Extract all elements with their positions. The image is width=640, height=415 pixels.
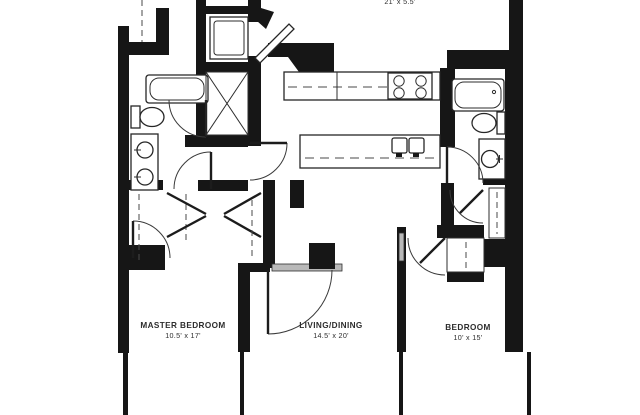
wall-segment	[196, 0, 206, 147]
wall-segment	[118, 245, 165, 270]
walls	[118, 0, 531, 415]
island-sink-icon	[392, 138, 407, 153]
master-bedroom-label: MASTER BEDROOM	[140, 321, 225, 330]
faucet-icon	[396, 153, 402, 157]
toilet-icon	[140, 108, 164, 127]
toilet-icon	[472, 114, 496, 133]
second-bathroom	[447, 79, 505, 183]
wall-segment	[437, 225, 484, 238]
island-sink-icon	[409, 138, 424, 153]
faucet-icon	[413, 153, 419, 157]
bedroom-dims: 10' x 15'	[453, 333, 482, 342]
gallery-dims-label: 21' x 5.5'	[384, 0, 416, 6]
wall-segment	[123, 353, 128, 415]
wall-segment	[509, 0, 523, 52]
wall-segment	[268, 43, 334, 72]
floor-plan: 21' x 5.5' MASTER BEDROOM 10.5' x 17' LI…	[0, 0, 640, 415]
wall-segment	[505, 67, 523, 352]
door-arc	[250, 143, 287, 180]
wall-segment	[118, 42, 169, 55]
toilet-tank	[497, 112, 505, 134]
wall-segment	[240, 352, 244, 415]
door-leaf	[420, 238, 445, 263]
kitchen	[284, 72, 440, 168]
living-dining-dims: 14.5' x 20'	[313, 331, 349, 340]
master-bedroom-dims: 10.5' x 17'	[165, 331, 201, 340]
wall-segment	[196, 62, 258, 72]
wall-segment	[198, 180, 248, 191]
sink-icon	[482, 151, 499, 168]
wall-segment	[441, 183, 454, 228]
door-sill	[399, 233, 404, 261]
toilet-tank	[131, 106, 140, 128]
wall-segment	[206, 6, 248, 14]
wall-segment	[290, 180, 304, 208]
wall-segment	[484, 239, 510, 267]
bedroom-label: BEDROOM	[445, 323, 491, 332]
bifold-door	[224, 216, 261, 237]
structural-column	[309, 243, 335, 269]
wall-segment	[263, 180, 275, 268]
living-dining-label: LIVING/DINING	[299, 321, 362, 330]
wall-segment	[399, 352, 403, 415]
washer-dryer-icon	[210, 17, 248, 59]
bifold-door	[224, 193, 261, 214]
wall-segment	[447, 272, 484, 282]
wall-segment	[185, 135, 248, 147]
floor-plan-drawing: 21' x 5.5' MASTER BEDROOM 10.5' x 17' LI…	[0, 0, 640, 415]
bathtub-icon	[452, 79, 504, 111]
wall-segment	[527, 352, 531, 415]
wall-segment	[447, 50, 523, 69]
door-leaf	[460, 190, 483, 213]
door-arc	[447, 147, 483, 183]
wall-segment	[238, 268, 250, 352]
